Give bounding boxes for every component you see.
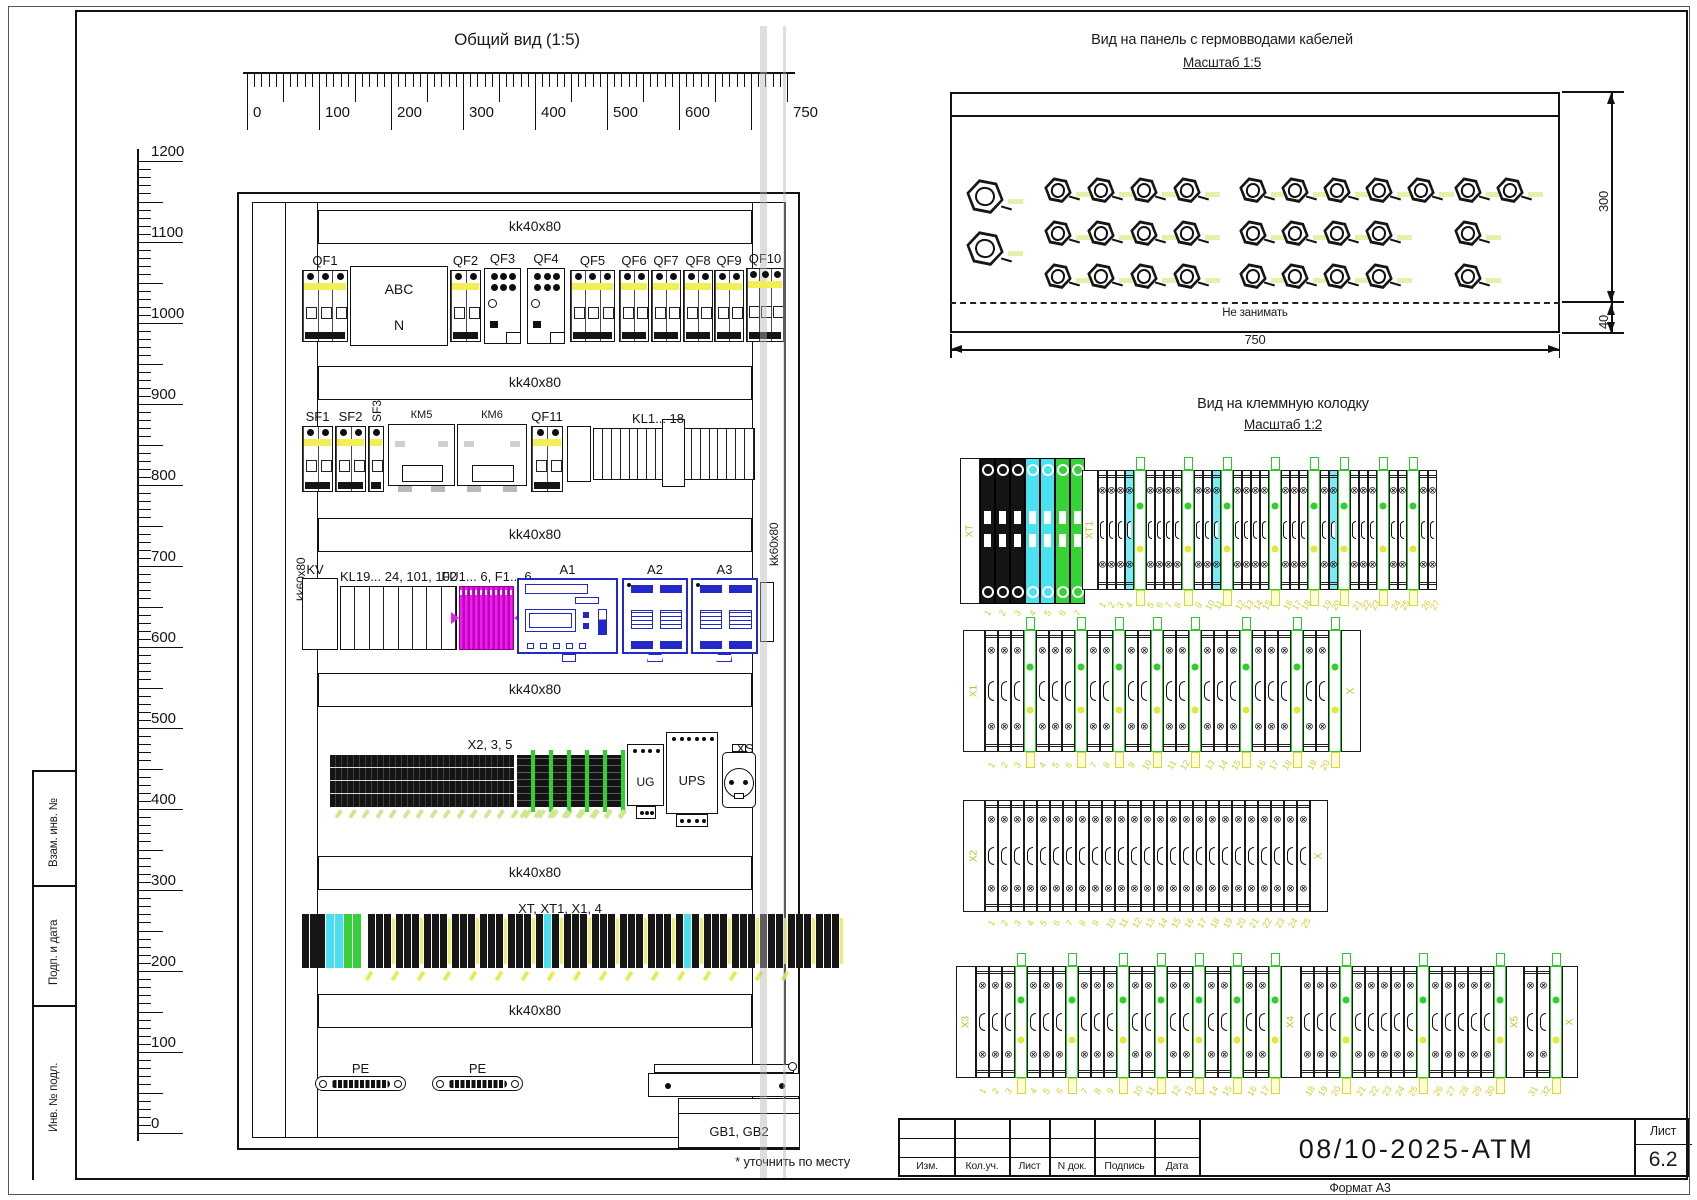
terminal-cell <box>768 914 775 968</box>
drawing-element <box>297 72 298 87</box>
drawing-element <box>137 177 151 178</box>
sep-tab-top <box>1017 953 1026 966</box>
drawing-sheet: Общий вид (1:5) Вид на панель с гермовво… <box>0 0 1697 1200</box>
terminal <box>1428 470 1437 590</box>
terminal <box>989 966 1002 1078</box>
drawing-element <box>137 226 151 227</box>
device-label: PE <box>352 1061 369 1076</box>
gland-tag <box>1162 278 1177 283</box>
sep-tab-bottom <box>1068 1078 1077 1094</box>
terminal <box>1091 966 1104 1078</box>
drawing-element <box>137 307 151 308</box>
terminal <box>1260 470 1269 590</box>
terminal <box>1233 470 1242 590</box>
terminal-cell <box>732 914 739 968</box>
yellow-sep <box>560 918 563 964</box>
terminal <box>1128 800 1141 912</box>
terminal-cell <box>517 755 531 807</box>
device-foot <box>636 806 656 819</box>
sep-tab-bottom <box>1271 1078 1280 1094</box>
terminal <box>1243 966 1256 1078</box>
sep-tab-bottom <box>1552 1078 1561 1094</box>
drawing-element <box>137 566 183 567</box>
terminal <box>1404 966 1417 1078</box>
terminal-cell <box>720 914 727 968</box>
terminal <box>1173 470 1182 590</box>
drawing-element <box>434 72 435 87</box>
drawing-element <box>348 72 349 87</box>
drawing-element <box>137 671 151 672</box>
drawing-element <box>780 72 781 87</box>
bracket-hole <box>788 1062 797 1071</box>
green-separator <box>1377 470 1389 590</box>
drawing-element <box>326 72 327 87</box>
drawing-element <box>384 72 385 87</box>
drawing-element <box>672 72 673 87</box>
device-foot <box>676 814 708 827</box>
green-separator <box>1189 630 1201 752</box>
breaker-QF1 <box>302 270 348 342</box>
drawing-element <box>137 291 151 292</box>
drawing-element <box>137 728 183 729</box>
v-ruler-label: 200 <box>151 953 176 970</box>
terminal-cell <box>788 914 795 968</box>
v-ruler-label: 1100 <box>151 224 183 241</box>
drawing-element <box>137 485 183 486</box>
green-separator <box>1193 966 1205 1078</box>
green-separator <box>1269 966 1281 1078</box>
terminal <box>1036 630 1049 752</box>
terminal <box>1314 966 1327 1078</box>
drawing-element <box>564 72 565 87</box>
sep-tab-top <box>1026 617 1035 630</box>
device-label: XS <box>736 741 753 756</box>
terminal-cell <box>302 914 309 968</box>
terminal <box>1011 800 1024 912</box>
yellow-sep <box>448 918 451 964</box>
terminal <box>1219 800 1232 912</box>
gland-tag <box>1205 235 1220 240</box>
sep-tab-bottom <box>1242 752 1251 768</box>
drawing-element <box>499 72 500 102</box>
drawing-element <box>137 979 151 980</box>
breaker-QF5 <box>570 270 615 342</box>
drawing-element <box>528 72 529 87</box>
sep-tab-top <box>1115 617 1124 630</box>
drawing-element <box>137 185 151 186</box>
drawing-element <box>137 890 183 891</box>
v-ruler-label: 0 <box>151 1115 159 1132</box>
terminal <box>1218 966 1231 1078</box>
drawing-element <box>137 736 151 737</box>
end-plate: X1 <box>963 630 985 752</box>
terminal <box>1391 966 1404 1078</box>
drawing-element <box>657 72 658 87</box>
terminal-strip-x2 <box>330 755 514 807</box>
drawing-element <box>137 858 151 859</box>
contactor-КМ5 <box>388 424 455 486</box>
terminal <box>1011 630 1024 752</box>
v-ruler-label: 400 <box>151 791 176 808</box>
fuse-end <box>451 612 459 624</box>
drawing-element <box>137 550 151 551</box>
drawing-element <box>137 1076 151 1077</box>
drawing-element <box>305 72 306 87</box>
drawing-element <box>737 72 738 87</box>
terminal <box>1167 966 1180 1078</box>
gland-tag <box>1397 235 1412 240</box>
drawing-element <box>137 161 183 162</box>
h-ruler-label: 200 <box>397 104 422 121</box>
drawing-element <box>950 349 1560 351</box>
terminal-cell <box>748 914 755 968</box>
drawing-element <box>32 885 75 887</box>
terminal <box>1368 470 1377 590</box>
fuse-block <box>459 586 514 650</box>
end-plate: X3 <box>956 966 976 1078</box>
drawing-element <box>398 72 399 87</box>
h-ruler-label: 400 <box>541 104 566 121</box>
h-ruler-label: 500 <box>613 104 638 121</box>
end-plate: X2 <box>963 800 985 912</box>
blank-module <box>567 426 591 482</box>
contactor-КМ6 <box>457 424 527 486</box>
drawing-element <box>485 72 486 87</box>
device-label: KL1... 18 <box>632 411 684 426</box>
sep-tab-bottom <box>1496 1078 1505 1094</box>
terminal <box>1146 470 1155 590</box>
drawing-element <box>137 841 151 842</box>
km-foot <box>398 486 412 492</box>
drawing-element <box>137 1068 151 1069</box>
module-tab <box>647 654 663 662</box>
drawing-element <box>137 493 151 494</box>
drawing-canvas: 0100200300400500600750120011001000900800… <box>0 0 1697 1200</box>
v-ruler-label: 600 <box>151 629 176 646</box>
terminal <box>1205 966 1218 1078</box>
plc-tab <box>562 654 576 662</box>
drawing-element <box>137 688 163 689</box>
dim-arrow <box>1548 345 1559 353</box>
drawing-element <box>137 793 151 794</box>
terminal-cell <box>692 914 699 968</box>
gland-panel <box>950 92 1560 333</box>
terminal-cell <box>796 914 803 968</box>
terminal-cell <box>571 755 585 807</box>
green-sep <box>621 750 625 812</box>
drawing-element <box>269 72 270 87</box>
end-plate: X <box>1341 630 1361 752</box>
terminal <box>985 630 998 752</box>
sep-tab-top <box>1419 953 1428 966</box>
terminal <box>1027 966 1040 1078</box>
drawing-element <box>137 372 151 373</box>
drawing-element <box>333 72 334 87</box>
block-terminal <box>980 458 995 604</box>
terminal <box>1053 966 1066 1078</box>
contactor-QF4 <box>527 268 565 344</box>
device-label: QF6 <box>621 253 646 268</box>
green-separator <box>1308 470 1320 590</box>
yellow-sep <box>672 918 675 964</box>
breaker-SF3 <box>368 426 384 492</box>
plc-A1 <box>517 578 618 654</box>
terminal-cell <box>740 914 747 968</box>
terminal-cell <box>676 914 683 968</box>
yellow-sep <box>532 918 535 964</box>
drawing-element <box>137 266 151 267</box>
terminal-cell <box>460 914 467 968</box>
sep-tab-top <box>1233 953 1242 966</box>
drawing-element <box>137 542 151 543</box>
terminal <box>1232 800 1245 912</box>
neutral-box: ABCN <box>350 266 448 346</box>
drawing-element <box>137 347 151 348</box>
sep-tab-bottom <box>1331 752 1340 768</box>
terminal <box>1359 470 1368 590</box>
terminal-cell <box>824 914 831 968</box>
terminal <box>1327 966 1340 1078</box>
drawing-element <box>137 801 151 802</box>
module-A3 <box>691 578 758 654</box>
terminal-cell <box>368 914 375 968</box>
terminal-cell <box>589 755 603 807</box>
yellow-sep <box>756 918 759 964</box>
sep-tab-bottom <box>1293 752 1302 768</box>
drawing-element <box>137 995 151 996</box>
din-rail-label: kk40x80 <box>509 864 561 880</box>
drawing-element <box>950 115 1560 117</box>
device-label: QF4 <box>533 251 558 266</box>
drawing-element <box>506 72 507 87</box>
km-foot <box>431 486 445 492</box>
sep-tab-bottom <box>1342 1078 1351 1094</box>
drawing-element <box>701 72 702 87</box>
dim-arrow <box>1607 93 1615 104</box>
terminal <box>1104 966 1117 1078</box>
sep-tab-bottom <box>1115 752 1124 768</box>
terminal-cell <box>684 914 691 968</box>
drawing-element <box>137 412 151 413</box>
terminal-cell <box>572 914 579 968</box>
green-separator <box>1269 470 1281 590</box>
drawing-element <box>137 169 151 170</box>
drawing-element <box>137 1036 151 1037</box>
dim-arrow <box>1607 291 1615 302</box>
gland-tag <box>1008 251 1023 256</box>
din-rail-label: kk40x80 <box>509 374 561 390</box>
device-label: QF7 <box>653 253 678 268</box>
drawing-element <box>137 1020 151 1021</box>
terminal <box>1163 630 1176 752</box>
drawing-element <box>535 72 536 130</box>
v-ruler-label: 300 <box>151 872 176 889</box>
drawing-element <box>137 744 151 745</box>
terminal-cell <box>704 914 711 968</box>
terminal-cell <box>432 914 439 968</box>
yellow-sep <box>420 918 423 964</box>
terminal-cell <box>344 914 352 968</box>
terminal <box>1180 800 1193 912</box>
drawing-element <box>600 72 601 87</box>
drawing-element <box>137 931 163 932</box>
terminal-cell <box>656 914 663 968</box>
green-separator <box>1024 630 1036 752</box>
device-box <box>302 578 338 650</box>
terminal <box>1227 630 1240 752</box>
drawing-element <box>319 72 320 130</box>
drawing-element <box>137 882 151 883</box>
terminal-cell <box>553 755 567 807</box>
drawing-element <box>708 72 709 87</box>
block-terminal <box>1040 458 1055 604</box>
drawing-element <box>593 72 594 87</box>
device-label: A1 <box>560 562 576 577</box>
terminal-cell <box>664 914 671 968</box>
breaker-QF7 <box>651 270 681 342</box>
terminal <box>1155 470 1164 590</box>
pe-busbar <box>432 1076 523 1091</box>
drawing-element <box>137 193 151 194</box>
terminal-cell <box>776 914 783 968</box>
device-label: QF2 <box>453 253 478 268</box>
gland-tag <box>1076 235 1091 240</box>
drawing-element <box>137 647 183 648</box>
drawing-element <box>137 809 183 810</box>
terminal-cell <box>452 914 459 968</box>
terminal <box>1049 630 1062 752</box>
terminal <box>998 800 1011 912</box>
green-separator <box>1417 966 1429 1078</box>
drawing-element <box>137 404 183 405</box>
yellow-sep <box>392 918 395 964</box>
terminal <box>1050 800 1063 912</box>
terminal-cell <box>712 914 719 968</box>
drawing-element <box>693 72 694 87</box>
terminal <box>1316 630 1329 752</box>
sep-tab-top <box>1340 457 1349 470</box>
drawing-element <box>137 704 151 705</box>
terminal <box>1352 966 1365 1078</box>
drawing-element <box>137 1101 151 1102</box>
terminal <box>1350 470 1359 590</box>
drawing-element <box>137 955 151 956</box>
terminal <box>1154 800 1167 912</box>
drawing-element <box>290 72 291 87</box>
block-terminal <box>995 458 1010 604</box>
drawing-element <box>787 72 788 102</box>
module-tab <box>716 654 732 662</box>
drawing-element <box>643 72 644 102</box>
gland-tag <box>1119 235 1134 240</box>
drawing-element <box>492 72 493 87</box>
v-ruler-label: 1000 <box>151 305 184 322</box>
green-separator <box>1113 630 1125 752</box>
terminal <box>1002 966 1015 1078</box>
terminal <box>1194 470 1203 590</box>
green-separator <box>1221 470 1233 590</box>
drawing-element <box>137 1028 151 1029</box>
terminal <box>1100 630 1113 752</box>
drawing-element <box>137 315 151 316</box>
device-label: QF5 <box>580 253 605 268</box>
drawing-element <box>137 833 151 834</box>
dim-arrow <box>1607 322 1615 333</box>
terminal <box>1164 470 1173 590</box>
breaker-SF1 <box>302 426 333 492</box>
terminal <box>1524 966 1537 1078</box>
drawing-element <box>137 752 151 753</box>
drawing-element <box>137 534 151 535</box>
drawing-element <box>137 922 151 923</box>
sep-tab-top <box>1293 617 1302 630</box>
terminal <box>1251 470 1260 590</box>
terminal-cell <box>404 914 411 968</box>
drawing-element <box>137 501 151 502</box>
end-plate: XT1 <box>1082 470 1098 590</box>
terminal-cell <box>488 914 495 968</box>
drawing-element <box>137 866 151 867</box>
sep-tab-bottom <box>1195 1078 1204 1094</box>
drawing-element <box>137 898 151 899</box>
sep-tab-bottom <box>1026 752 1035 768</box>
terminal <box>1102 800 1115 912</box>
terminal <box>1129 966 1142 1078</box>
terminal <box>1193 800 1206 912</box>
device-label: A3 <box>717 562 733 577</box>
device-label: QF9 <box>716 253 741 268</box>
terminal <box>1176 630 1189 752</box>
drawing-element <box>137 777 151 778</box>
sep-tab-top <box>1077 617 1086 630</box>
yellow-sep <box>812 918 815 964</box>
drawing-element <box>137 825 151 826</box>
drawing-element <box>137 1060 151 1061</box>
drawing-element <box>369 72 370 87</box>
terminal-cell <box>353 914 361 968</box>
terminal <box>1389 470 1398 590</box>
terminal-cell <box>516 914 523 968</box>
terminal <box>1320 470 1329 590</box>
drawing-element <box>463 72 464 130</box>
drawing-element <box>137 428 151 429</box>
gland-tag <box>1119 192 1134 197</box>
device-label: КМ6 <box>481 409 503 421</box>
drawing-element <box>137 607 163 608</box>
yellow-sep <box>616 918 619 964</box>
v-ruler-label: 700 <box>151 548 176 565</box>
block-terminal <box>1010 458 1025 604</box>
drawing-element <box>137 526 163 527</box>
terminal-cell <box>592 914 599 968</box>
green-separator <box>1015 966 1027 1078</box>
battery-box: GB1, GB2 <box>678 1098 800 1148</box>
din-rail-label: kk40x80 <box>509 681 561 697</box>
sep-tab-bottom <box>1153 752 1162 768</box>
km-foot <box>467 486 481 492</box>
gland-tag <box>1205 278 1220 283</box>
drawing-element <box>137 574 151 575</box>
terminal <box>1167 800 1180 912</box>
device-ups: UPS <box>666 732 718 814</box>
fold-line <box>783 26 786 1178</box>
dim-arrow <box>951 345 962 353</box>
green-separator <box>1066 966 1078 1078</box>
gland-tag <box>1162 235 1177 240</box>
terminal <box>1245 800 1258 912</box>
terminal <box>998 630 1011 752</box>
drawing-element <box>32 1005 75 1007</box>
